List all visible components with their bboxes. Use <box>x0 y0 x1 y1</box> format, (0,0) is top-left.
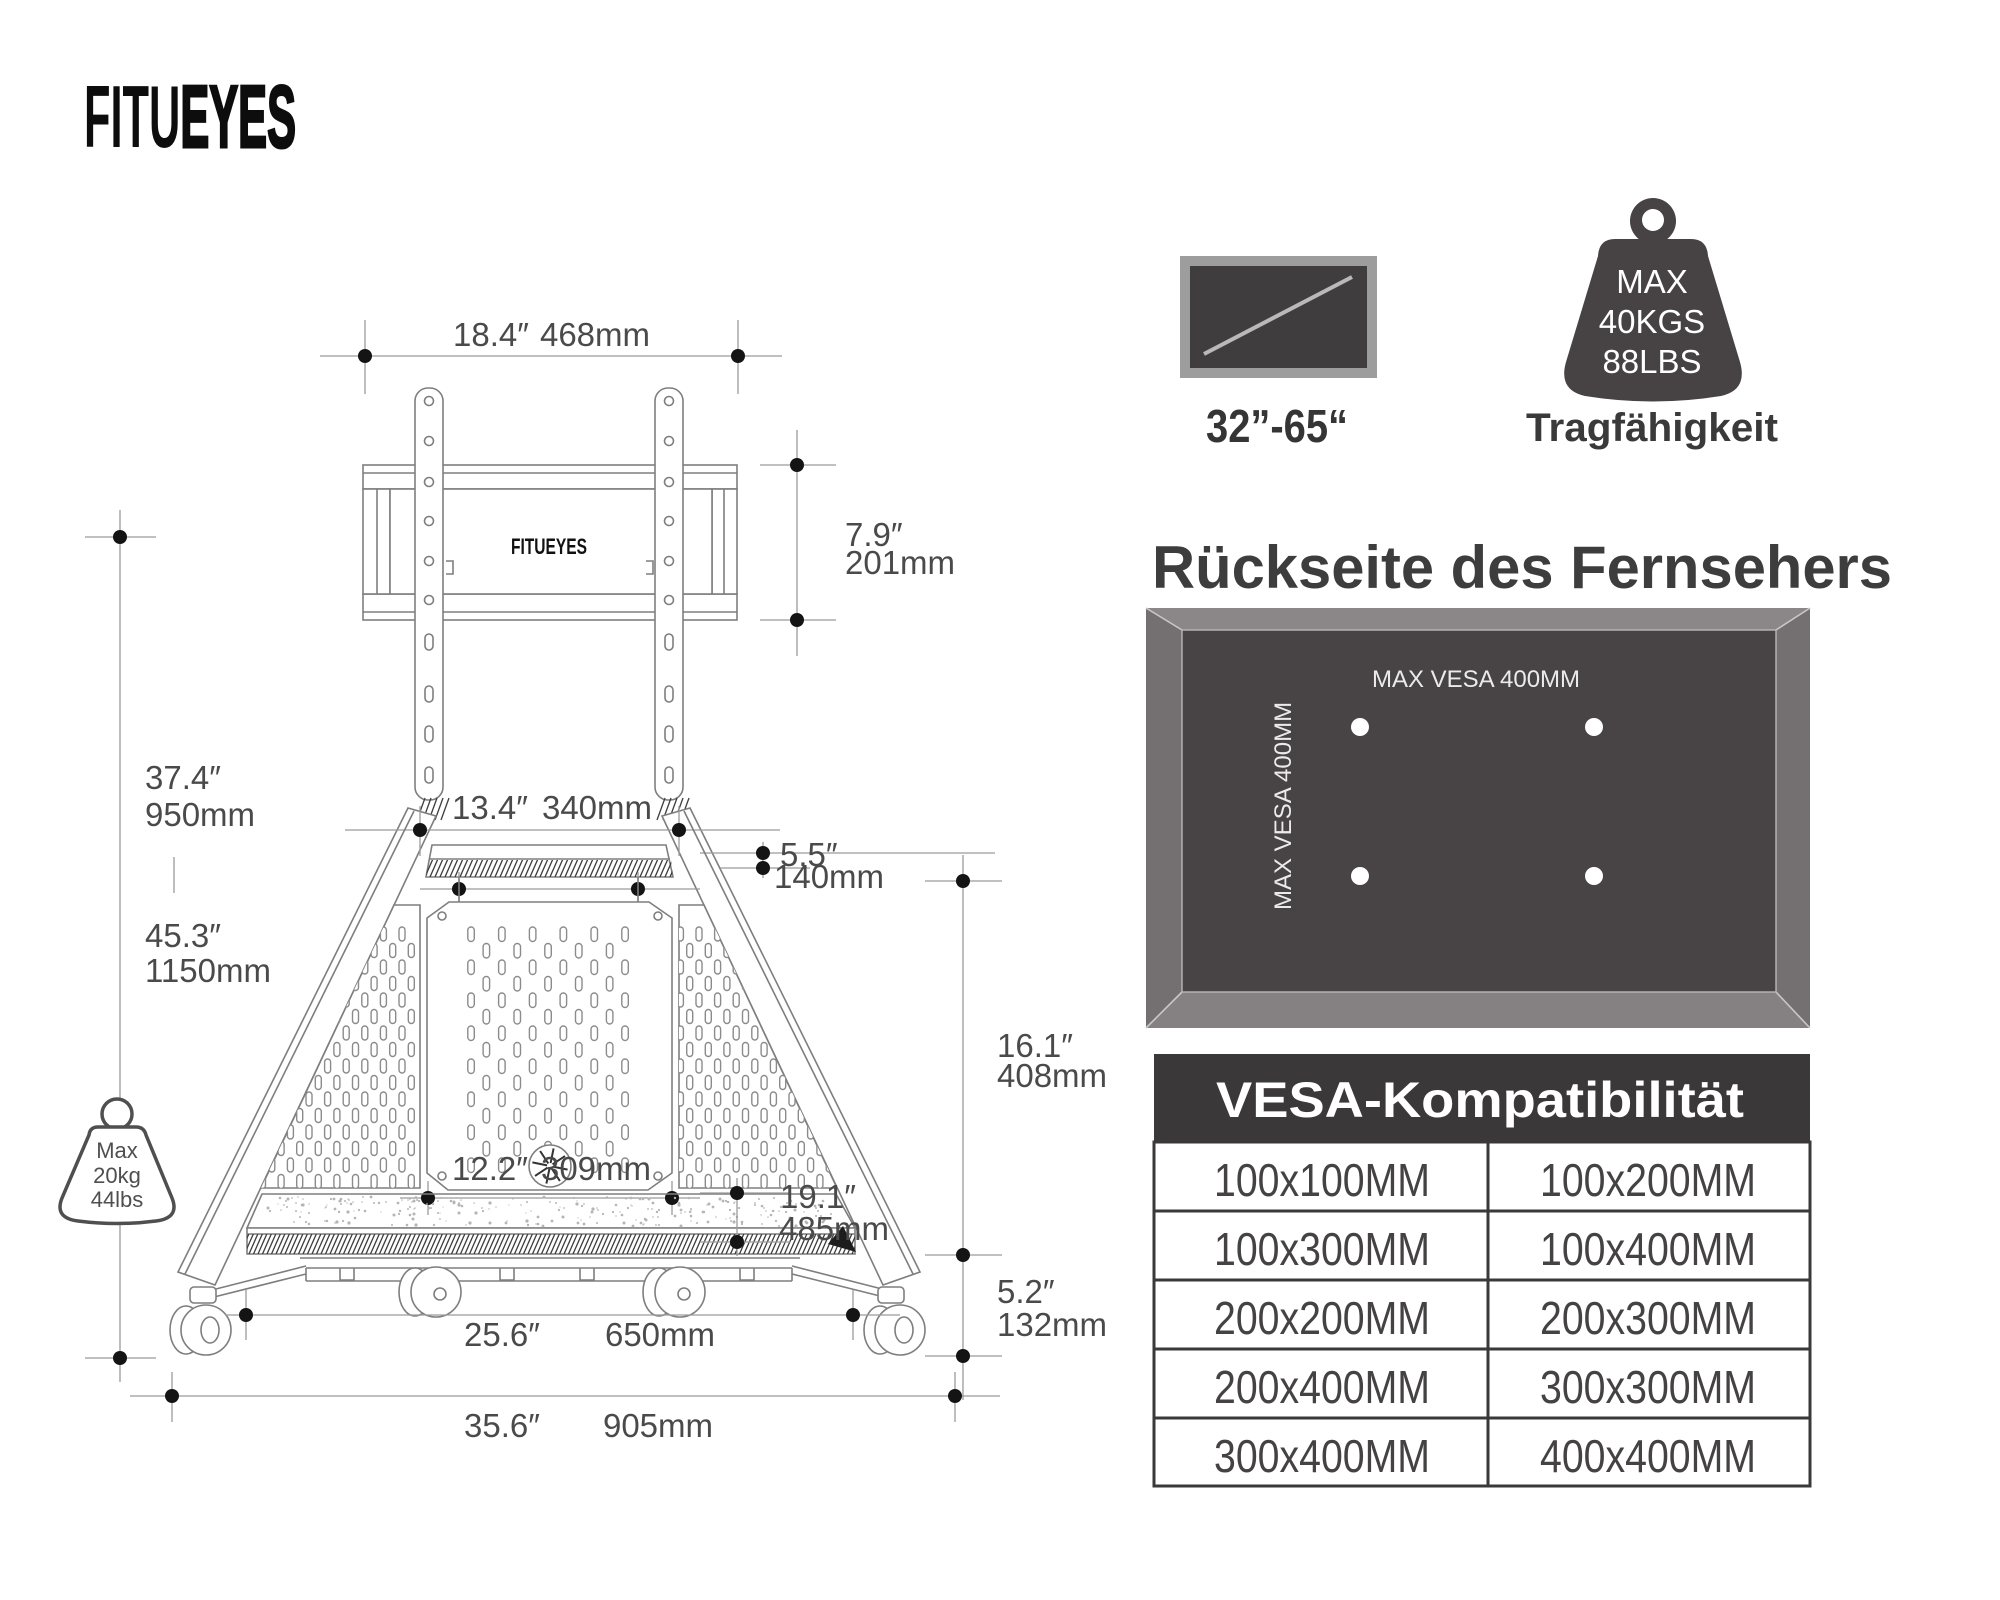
svg-text:Tragfähigkeit: Tragfähigkeit <box>1526 406 1778 450</box>
svg-text:44lbs: 44lbs <box>91 1187 144 1212</box>
svg-text:300x300MM: 300x300MM <box>1540 1361 1756 1413</box>
svg-text:12.2″: 12.2″ <box>452 1150 528 1187</box>
svg-text:200x300MM: 200x300MM <box>1540 1292 1756 1344</box>
svg-text:37.4″: 37.4″ <box>145 759 221 796</box>
svg-text:201mm: 201mm <box>845 544 955 581</box>
svg-text:18.4″: 18.4″ <box>453 316 529 353</box>
svg-text:1150mm: 1150mm <box>145 952 271 989</box>
svg-text:400x400MM: 400x400MM <box>1540 1430 1756 1482</box>
svg-text:25.6″: 25.6″ <box>464 1316 540 1353</box>
svg-text:408mm: 408mm <box>997 1057 1107 1094</box>
svg-text:309mm: 309mm <box>541 1150 651 1187</box>
svg-text:300x400MM: 300x400MM <box>1214 1430 1430 1482</box>
svg-text:35.6″: 35.6″ <box>464 1407 540 1444</box>
svg-text:FITUEYES: FITUEYES <box>84 67 296 166</box>
svg-text:468mm: 468mm <box>540 316 650 353</box>
svg-text:100x400MM: 100x400MM <box>1540 1223 1756 1275</box>
svg-text:Max: Max <box>96 1138 138 1163</box>
svg-text:40KGS: 40KGS <box>1599 303 1705 340</box>
svg-text:950mm: 950mm <box>145 796 255 833</box>
svg-text:905mm: 905mm <box>603 1407 713 1444</box>
svg-text:140mm: 140mm <box>774 858 884 895</box>
svg-text:MAX VESA 400MM: MAX VESA 400MM <box>1372 666 1580 693</box>
svg-text:340mm: 340mm <box>542 789 652 826</box>
svg-text:100x100MM: 100x100MM <box>1214 1154 1430 1206</box>
svg-text:VESA-Kompatibilität: VESA-Kompatibilität <box>1216 1072 1744 1128</box>
svg-text:5.2″: 5.2″ <box>997 1273 1055 1310</box>
svg-text:45.3″: 45.3″ <box>145 917 221 954</box>
svg-text:13.4″: 13.4″ <box>452 789 528 826</box>
svg-text:20kg: 20kg <box>93 1163 141 1188</box>
svg-text:MAX: MAX <box>1616 263 1688 300</box>
svg-text:Rückseite des Fernsehers: Rückseite des Fernsehers <box>1152 534 1892 601</box>
svg-text:132mm: 132mm <box>997 1306 1107 1343</box>
svg-text:88LBS: 88LBS <box>1602 343 1701 380</box>
svg-text:MAX VESA 400MM: MAX VESA 400MM <box>1270 702 1297 910</box>
svg-text:200x200MM: 200x200MM <box>1214 1292 1430 1344</box>
svg-text:485mm: 485mm <box>779 1210 889 1247</box>
svg-text:FITUEYES: FITUEYES <box>511 534 587 559</box>
svg-text:650mm: 650mm <box>605 1316 715 1353</box>
svg-text:100x200MM: 100x200MM <box>1540 1154 1756 1206</box>
svg-text:100x300MM: 100x300MM <box>1214 1223 1430 1275</box>
svg-text:32”-65“: 32”-65“ <box>1206 400 1348 452</box>
svg-text:200x400MM: 200x400MM <box>1214 1361 1430 1413</box>
